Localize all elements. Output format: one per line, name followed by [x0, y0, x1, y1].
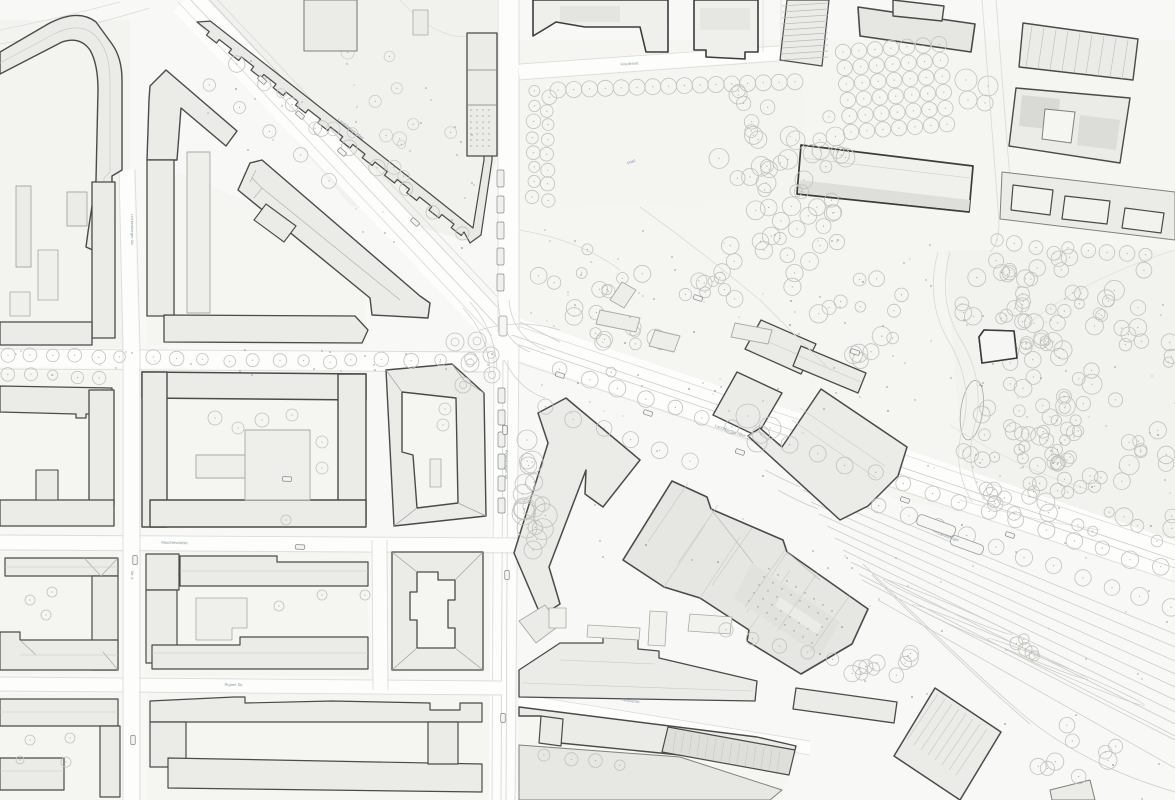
- svg-text:Lichtenberger Str.: Lichtenberger Str.: [130, 214, 135, 246]
- svg-text:Rigaer Str.: Rigaer Str.: [225, 682, 244, 687]
- svg-text:Str. A: Str. A: [130, 570, 134, 580]
- svg-text:Petersburger Str.: Petersburger Str.: [504, 450, 509, 480]
- svg-text:Marchlewskistr.: Marchlewskistr.: [161, 540, 188, 545]
